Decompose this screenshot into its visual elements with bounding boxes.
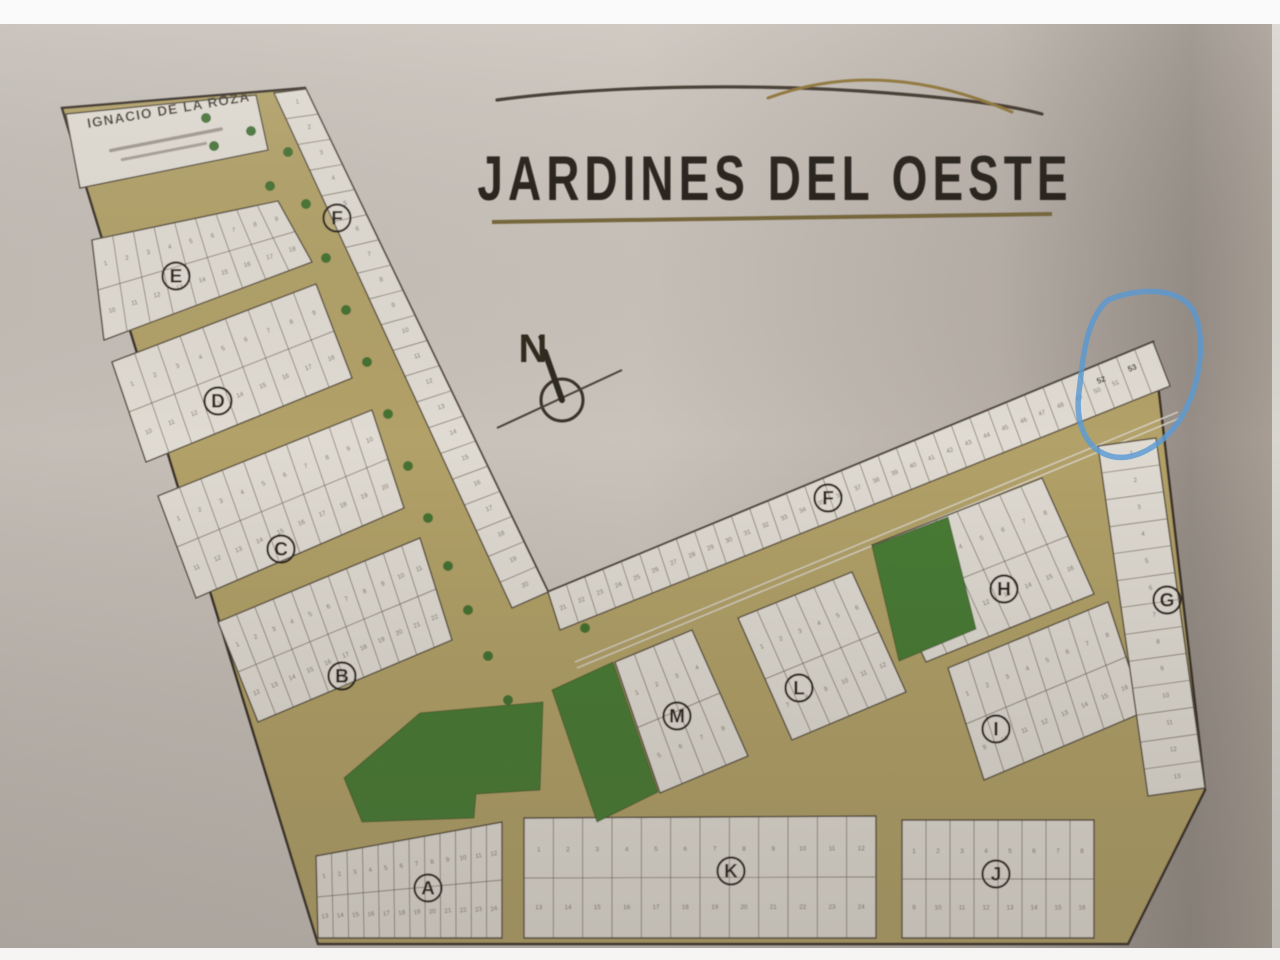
plat-map-photo: 1102113124135146157168179181102113124135… (0, 0, 1280, 960)
top-border (0, 0, 1280, 24)
photo-shading (0, 24, 1280, 948)
bottom-border (0, 948, 1280, 960)
